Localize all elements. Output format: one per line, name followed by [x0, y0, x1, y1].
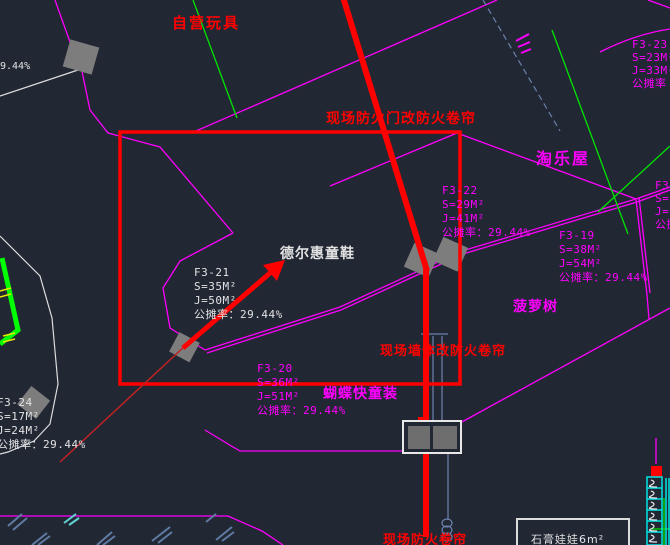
zone-label-pineapple: 菠萝树 — [513, 296, 558, 316]
unit-label-f3-19: F3-19 S=38M² J=54M² 公摊率：29.44% — [559, 229, 648, 285]
unit-label-f3-20: F3-20 S=36M² J=51M² 公摊率：29.44% — [257, 362, 346, 418]
hatch-marks — [8, 514, 234, 545]
zone-label-taolewu: 淘乐屋 — [536, 145, 590, 169]
blue-detail-lines — [421, 0, 560, 541]
brand-label-deerhui: 德尔惠童鞋 — [280, 243, 355, 263]
zone-label-toys: 自营玩具 — [172, 12, 240, 33]
cad-drawing-canvas[interactable]: 9.44% 自营玩具 现场防火门改防火卷帘 淘乐屋 德尔惠童鞋 现场墙体改防火卷… — [0, 0, 670, 545]
thick-green-wall-line — [0, 258, 18, 344]
unit-label-f3-21: F3-21 S=35M² J=50M² 公摊率：29.44% — [194, 266, 283, 322]
unit-label-f3-22: F3-22 S=29M² J=41M² 公摊率：29.44% — [442, 184, 531, 240]
equipment-box — [403, 421, 461, 453]
note-fire-shutter: 现场防火卷帘 — [383, 529, 467, 545]
red-square-marker — [651, 466, 662, 477]
share-pct-label: 9.44% — [0, 61, 30, 72]
note-wall-change: 现场墙体改防火卷帘 — [380, 340, 506, 359]
unit-label-right-edge: F3-1 S=1 J=16 公摊率 — [655, 179, 670, 231]
note-fire-door: 现场防火门改防火卷帘 — [326, 108, 476, 128]
legend-box: 石膏娃娃6m² — [516, 518, 630, 545]
line-annotation-scribble — [516, 34, 531, 53]
unit-label-f3-23: F3-23 S=23M² J=33M² 公摊率 — [632, 38, 670, 90]
column-markers — [17, 39, 468, 418]
legend-plaster-label: 石膏娃娃6m² — [531, 531, 604, 545]
unit-label-f3-24: F3-24 S=17M² J=24M² 公摊率：29.44% — [0, 396, 86, 452]
